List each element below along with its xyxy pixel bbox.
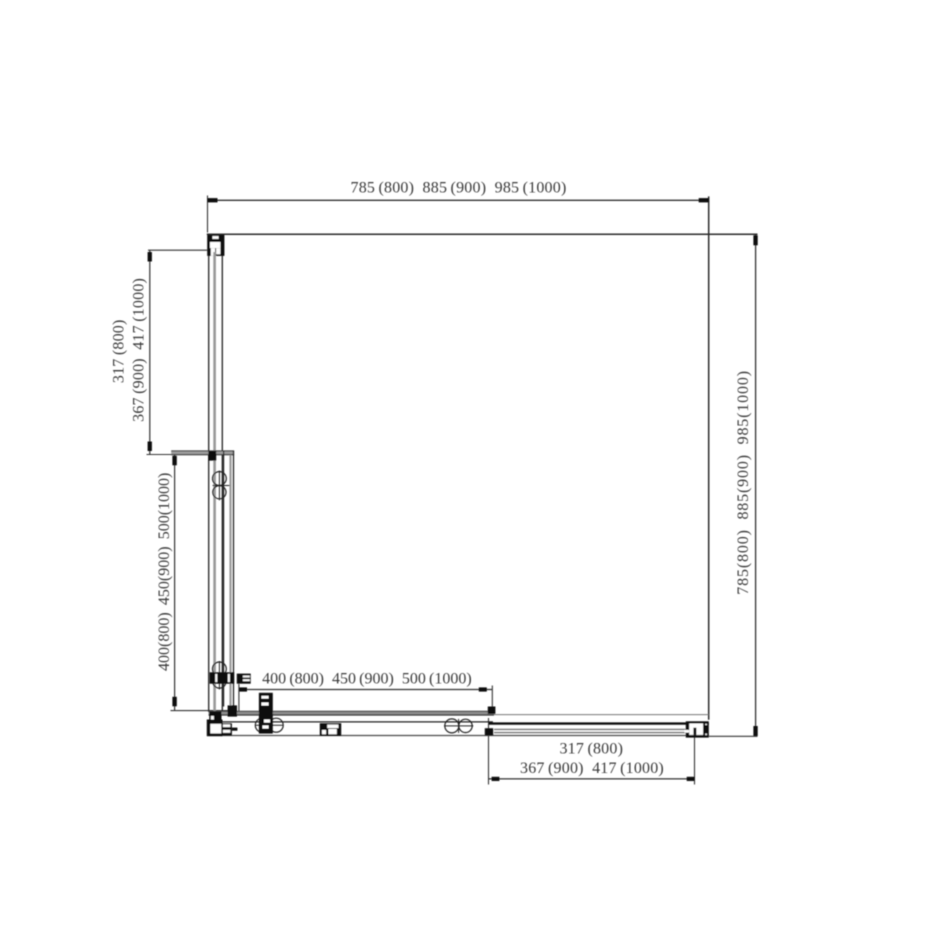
svg-text:367 (900) 417 (1000): 367 (900) 417 (1000) (130, 278, 147, 422)
svg-text:317 (800): 317 (800) (111, 319, 128, 383)
svg-text:367 (900) 417 (1000): 367 (900) 417 (1000) (520, 760, 664, 777)
svg-text:400 (800) 450 (900) 500 (100: 400 (800) 450 (900) 500 (1000) (262, 670, 472, 687)
svg-text:785 (800) 885 (900) 985 (100: 785 (800) 885 (900) 985 (1000) (351, 179, 567, 196)
svg-text:400(800) 450(900) 500(1000): 400(800) 450(900) 500(1000) (156, 473, 173, 671)
svg-text:785(800) 885(900) 985(1000): 785(800) 885(900) 985(1000) (735, 370, 752, 595)
svg-text:317 (800): 317 (800) (559, 740, 623, 757)
